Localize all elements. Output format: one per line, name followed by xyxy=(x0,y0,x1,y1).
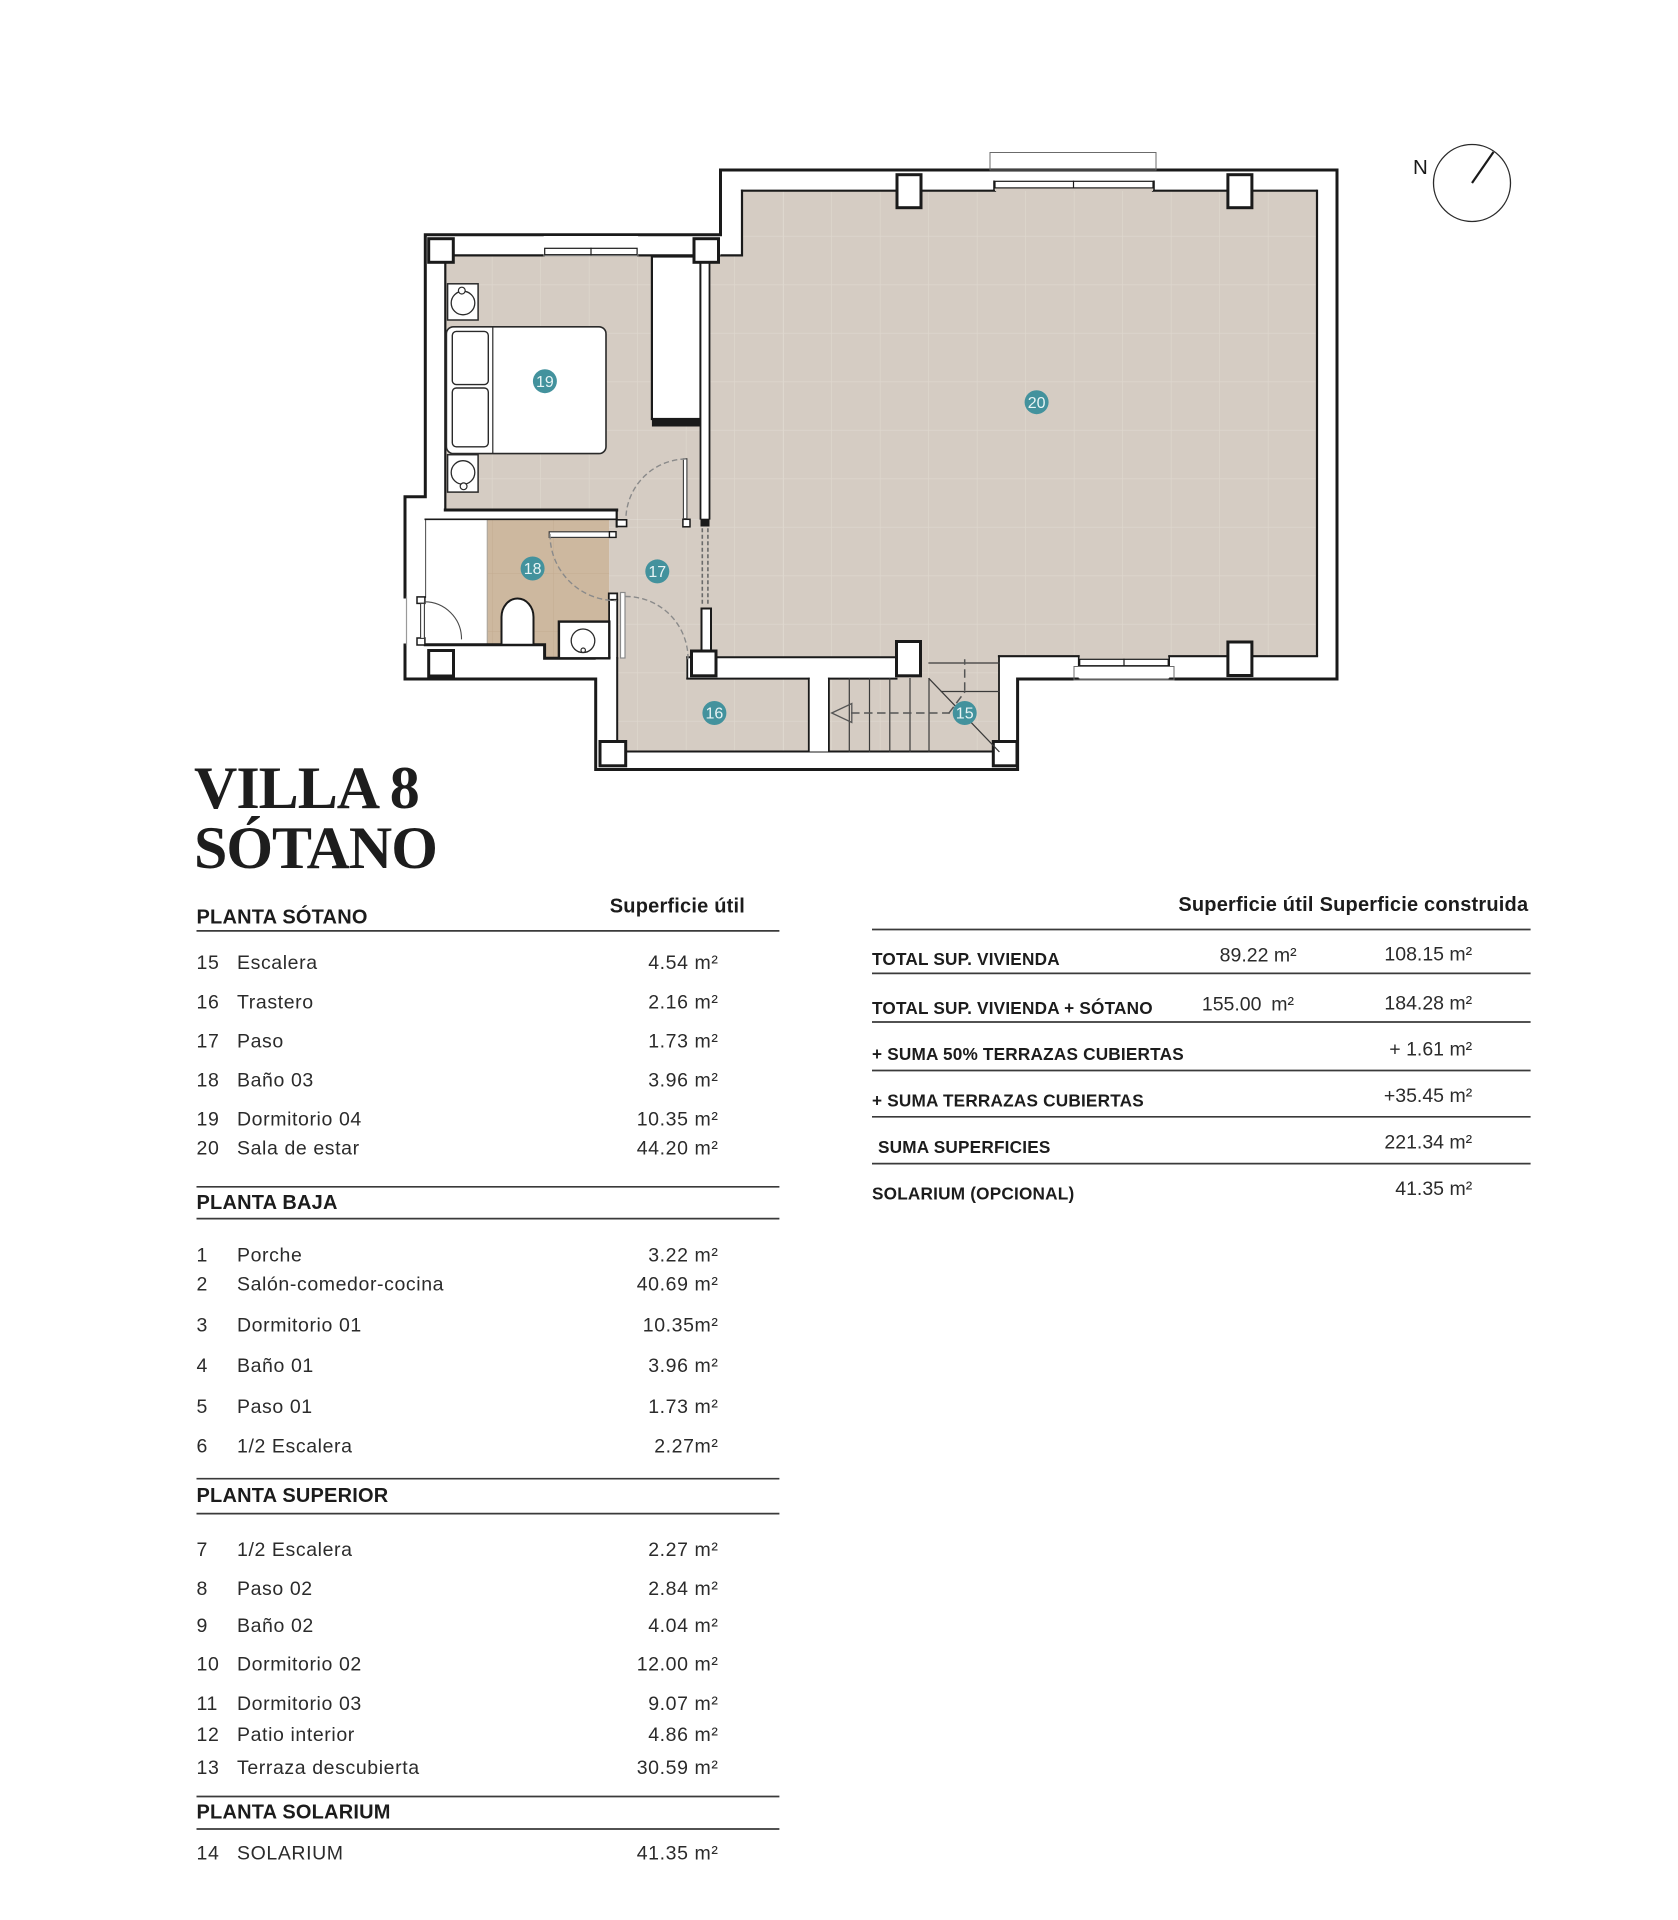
svg-text:15: 15 xyxy=(956,706,974,723)
svg-text:3.22 m²: 3.22 m² xyxy=(648,1245,718,1267)
svg-text:SOLARIUM (OPCIONAL): SOLARIUM (OPCIONAL) xyxy=(872,1183,1074,1203)
svg-text:2.16 m²: 2.16 m² xyxy=(648,991,718,1013)
svg-text:Escalera: Escalera xyxy=(237,952,318,974)
svg-text:20: 20 xyxy=(197,1138,220,1160)
svg-text:Porche: Porche xyxy=(237,1245,302,1267)
svg-text:Dormitorio 02: Dormitorio 02 xyxy=(237,1654,362,1676)
svg-text:4.54 m²: 4.54 m² xyxy=(648,952,718,974)
svg-text:TOTAL SUP. VIVIENDA + SÓTANO: TOTAL SUP. VIVIENDA + SÓTANO xyxy=(872,998,1153,1018)
svg-text:VILLA 8: VILLA 8 xyxy=(194,755,419,821)
svg-text:Salón-comedor-cocina: Salón-comedor-cocina xyxy=(237,1274,444,1296)
svg-text:40.69 m²: 40.69 m² xyxy=(637,1274,719,1296)
svg-text:2.84 m²: 2.84 m² xyxy=(648,1578,718,1600)
svg-text:2.27 m²: 2.27 m² xyxy=(648,1539,718,1561)
svg-text:Baño 01: Baño 01 xyxy=(237,1355,314,1377)
svg-text:3: 3 xyxy=(197,1314,208,1336)
svg-text:5: 5 xyxy=(197,1396,208,1418)
svg-text:Baño 02: Baño 02 xyxy=(237,1615,314,1637)
svg-text:SUMA SUPERFICIES: SUMA SUPERFICIES xyxy=(878,1137,1051,1157)
svg-text:155.00 m²: 155.00 m² xyxy=(1202,994,1295,1016)
svg-text:4.04 m²: 4.04 m² xyxy=(648,1615,718,1637)
svg-text:Baño 03: Baño 03 xyxy=(237,1070,314,1092)
svg-text:Terraza descubierta: Terraza descubierta xyxy=(237,1757,420,1779)
svg-text:SOLARIUM: SOLARIUM xyxy=(237,1842,344,1864)
svg-text:1.73 m²: 1.73 m² xyxy=(648,1030,718,1052)
svg-text:30.59 m²: 30.59 m² xyxy=(637,1757,719,1779)
svg-text:2: 2 xyxy=(197,1274,208,1296)
svg-text:19: 19 xyxy=(536,374,554,391)
svg-text:Paso: Paso xyxy=(237,1030,284,1052)
svg-text:108.15 m²: 108.15 m² xyxy=(1384,944,1472,966)
svg-text:PLANTA SUPERIOR: PLANTA SUPERIOR xyxy=(197,1485,389,1507)
svg-text:18: 18 xyxy=(524,561,542,578)
svg-text:Paso 01: Paso 01 xyxy=(237,1396,313,1418)
svg-text:10.35 m²: 10.35 m² xyxy=(637,1109,719,1131)
svg-text:4: 4 xyxy=(197,1355,208,1377)
svg-text:PLANTA SÓTANO: PLANTA SÓTANO xyxy=(197,905,368,929)
svg-text:7: 7 xyxy=(197,1539,208,1561)
svg-text:10: 10 xyxy=(197,1654,220,1676)
svg-text:Superficie construida: Superficie construida xyxy=(1320,894,1529,916)
svg-text:1: 1 xyxy=(197,1245,208,1267)
svg-text:3.96 m²: 3.96 m² xyxy=(648,1070,718,1092)
svg-text:4.86 m²: 4.86 m² xyxy=(648,1724,718,1746)
svg-text:+ SUMA TERRAZAS CUBIERTAS: + SUMA TERRAZAS CUBIERTAS xyxy=(872,1091,1144,1111)
svg-text:6: 6 xyxy=(197,1435,208,1457)
svg-text:+ SUMA 50% TERRAZAS CUBIERTAS: + SUMA 50% TERRAZAS CUBIERTAS xyxy=(872,1044,1184,1064)
svg-text:1/2 Escalera: 1/2 Escalera xyxy=(237,1435,353,1457)
svg-text:12: 12 xyxy=(197,1724,220,1746)
svg-text:Patio interior: Patio interior xyxy=(237,1724,355,1746)
svg-text:9: 9 xyxy=(197,1615,208,1637)
svg-text:89.22 m²: 89.22 m² xyxy=(1220,945,1297,967)
svg-text:1.73 m²: 1.73 m² xyxy=(648,1396,718,1418)
svg-text:Superficie útil: Superficie útil xyxy=(1178,894,1313,916)
svg-text:1/2 Escalera: 1/2 Escalera xyxy=(237,1539,353,1561)
svg-text:SÓTANO: SÓTANO xyxy=(194,815,437,881)
svg-text:2.27m²: 2.27m² xyxy=(654,1435,718,1457)
svg-text:Trastero: Trastero xyxy=(237,991,314,1013)
svg-text:10.35m²: 10.35m² xyxy=(643,1314,719,1336)
svg-text:17: 17 xyxy=(648,564,666,581)
svg-text:44.20 m²: 44.20 m² xyxy=(637,1138,719,1160)
svg-text:11: 11 xyxy=(197,1693,218,1715)
svg-text:+35.45 m²: +35.45 m² xyxy=(1384,1085,1473,1107)
svg-text:16: 16 xyxy=(197,991,220,1013)
svg-text:41.35 m²: 41.35 m² xyxy=(637,1842,719,1864)
svg-text:9.07 m²: 9.07 m² xyxy=(648,1693,718,1715)
svg-text:PLANTA BAJA: PLANTA BAJA xyxy=(197,1192,338,1214)
svg-text:12.00 m²: 12.00 m² xyxy=(637,1654,719,1676)
svg-text:8: 8 xyxy=(197,1578,208,1600)
svg-text:20: 20 xyxy=(1028,395,1046,412)
svg-text:221.34 m²: 221.34 m² xyxy=(1384,1131,1472,1153)
svg-text:16: 16 xyxy=(706,706,724,723)
svg-text:N: N xyxy=(1413,156,1428,179)
svg-text:Dormitorio 01: Dormitorio 01 xyxy=(237,1314,362,1336)
svg-text:41.35 m²: 41.35 m² xyxy=(1395,1178,1472,1200)
svg-text:PLANTA SOLARIUM: PLANTA SOLARIUM xyxy=(197,1802,391,1824)
svg-text:Paso 02: Paso 02 xyxy=(237,1578,313,1600)
svg-text:18: 18 xyxy=(197,1070,220,1092)
svg-text:+ 1.61 m²: + 1.61 m² xyxy=(1389,1039,1472,1061)
svg-text:14: 14 xyxy=(197,1842,220,1864)
svg-text:17: 17 xyxy=(197,1030,220,1052)
svg-text:3.96 m²: 3.96 m² xyxy=(648,1355,718,1377)
svg-text:184.28 m²: 184.28 m² xyxy=(1384,993,1472,1015)
svg-text:Superficie útil: Superficie útil xyxy=(610,896,745,918)
svg-text:15: 15 xyxy=(197,952,220,974)
svg-text:Dormitorio 04: Dormitorio 04 xyxy=(237,1109,362,1131)
svg-text:TOTAL SUP. VIVIENDA: TOTAL SUP. VIVIENDA xyxy=(872,949,1060,969)
svg-text:13: 13 xyxy=(197,1757,220,1779)
svg-text:Dormitorio 03: Dormitorio 03 xyxy=(237,1693,362,1715)
svg-text:Sala de estar: Sala de estar xyxy=(237,1138,360,1160)
svg-text:19: 19 xyxy=(197,1109,220,1131)
